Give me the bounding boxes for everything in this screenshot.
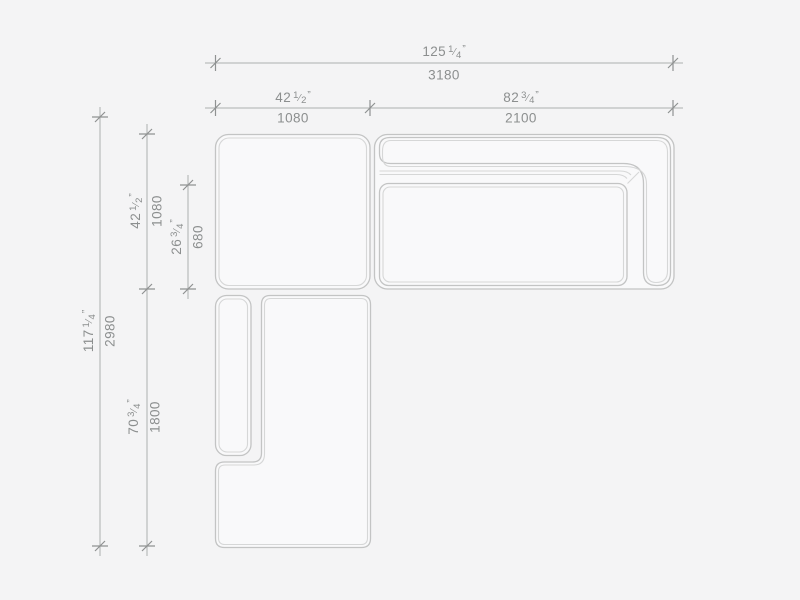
- fraction-numerator: 3: [521, 90, 526, 101]
- fraction-numerator: 1: [448, 44, 453, 55]
- fraction-denominator: 4: [529, 95, 534, 106]
- dim-value: 42: [275, 90, 291, 105]
- dim-value: 82: [503, 90, 519, 105]
- dim-value: 125: [422, 44, 446, 59]
- dim-corner-width-inches-label: 421⁄2”: [275, 91, 310, 105]
- corner-module-outline: [216, 135, 371, 290]
- dim-overall-width-mm-label: 3180: [428, 68, 460, 82]
- dim-value: 42: [128, 213, 143, 229]
- dim-corner-depth-inches-label: 421⁄2”: [129, 193, 143, 228]
- dim-chaise-length-inches-label: 703⁄4”: [127, 399, 141, 434]
- fraction-denominator: 2: [301, 95, 306, 106]
- fraction-denominator: 4: [456, 50, 461, 61]
- dim-value-mm: 3180: [428, 67, 460, 82]
- dim-sofa-width-inches-label: 823⁄4”: [503, 91, 538, 105]
- dimension-ticks: [92, 55, 678, 551]
- fraction-numerator: 1: [81, 322, 92, 327]
- fraction-numerator: 1: [128, 206, 139, 211]
- inch-mark: ”: [169, 219, 180, 222]
- dim-value: 70: [126, 419, 141, 435]
- inch-mark: ”: [128, 193, 139, 196]
- sofa-dimension-diagram: 1251⁄4” 3180 421⁄2” 1080 823⁄4” 2100 117…: [0, 0, 800, 600]
- inch-mark: ”: [535, 90, 538, 101]
- fraction-denominator: 4: [175, 224, 186, 229]
- fraction-numerator: 3: [169, 232, 180, 237]
- dim-value: 117: [81, 329, 96, 352]
- dim-overall-depth-mm-label: 2980: [103, 315, 117, 347]
- chaise-armrest-outline: [216, 296, 252, 456]
- dim-value-mm: 1800: [147, 401, 162, 433]
- technical-drawing-canvas: [0, 0, 800, 600]
- dim-corner-depth-mm-label: 1080: [150, 195, 164, 227]
- inch-mark: ”: [126, 399, 137, 402]
- sofa-seat-cushion-outline: [380, 184, 628, 286]
- dim-overall-width-inches-label: 1251⁄4”: [422, 45, 465, 59]
- dim-seat-depth-inches-label: 263⁄4”: [170, 219, 184, 254]
- inch-mark: ”: [307, 90, 310, 101]
- dim-value-mm: 2100: [505, 110, 537, 125]
- fraction-denominator: 2: [134, 198, 145, 203]
- inch-mark: ”: [462, 44, 465, 55]
- fraction-numerator: 3: [126, 412, 137, 417]
- dim-value-mm: 1080: [149, 195, 164, 227]
- dim-chaise-length-mm-label: 1800: [148, 401, 162, 433]
- dim-value-mm: 1080: [277, 110, 309, 125]
- fraction-denominator: 4: [87, 314, 98, 319]
- fraction-numerator: 1: [293, 90, 298, 101]
- fraction-slash: ⁄: [454, 47, 456, 58]
- dim-sofa-width-mm-label: 2100: [505, 111, 537, 125]
- inch-mark: ”: [81, 310, 92, 313]
- dim-overall-depth-inches-label: 1171⁄4”: [82, 310, 96, 352]
- dim-value: 26: [169, 239, 184, 255]
- dim-value-mm: 680: [190, 225, 205, 249]
- fraction-denominator: 4: [132, 404, 143, 409]
- sectional-sofa-plan: [216, 135, 675, 548]
- dim-seat-depth-mm-label: 680: [191, 225, 205, 249]
- dim-corner-width-mm-label: 1080: [277, 111, 309, 125]
- dim-value-mm: 2980: [102, 315, 117, 347]
